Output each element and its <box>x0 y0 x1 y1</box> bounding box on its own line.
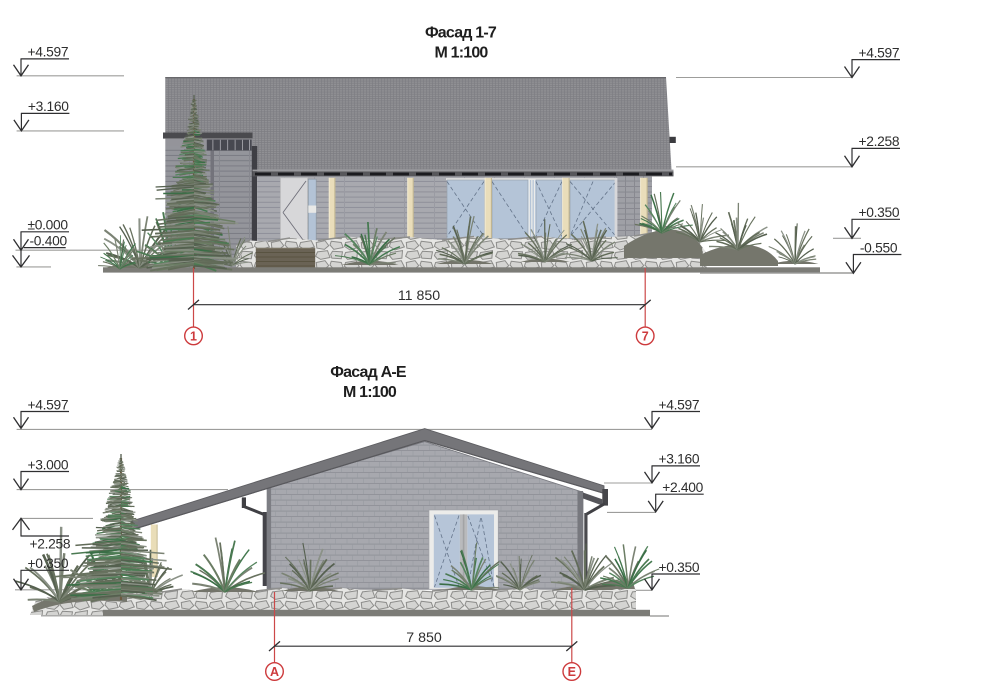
svg-text:+2.258: +2.258 <box>859 134 900 149</box>
svg-text:Е: Е <box>568 665 576 679</box>
svg-text:+3.160: +3.160 <box>28 99 69 114</box>
svg-text:1: 1 <box>190 330 197 344</box>
svg-text:+3.000: +3.000 <box>28 457 69 472</box>
svg-text:Фасад А-Е: Фасад А-Е <box>330 364 407 381</box>
svg-text:7: 7 <box>642 330 649 344</box>
svg-text:+0.350: +0.350 <box>859 205 900 220</box>
svg-text:+4.597: +4.597 <box>28 397 69 412</box>
svg-text:Фасад 1-7: Фасад 1-7 <box>425 25 497 42</box>
svg-text:±0.000: ±0.000 <box>28 218 69 233</box>
svg-text:-0.550: -0.550 <box>860 240 898 255</box>
svg-text:А: А <box>270 665 279 679</box>
svg-text:+2.258: +2.258 <box>30 537 71 552</box>
svg-text:11 850: 11 850 <box>398 288 440 304</box>
svg-text:+4.597: +4.597 <box>859 45 900 60</box>
svg-text:+2.400: +2.400 <box>662 480 703 495</box>
svg-text:7 850: 7 850 <box>406 630 442 646</box>
svg-text:+0.350: +0.350 <box>28 556 69 571</box>
svg-text:+4.597: +4.597 <box>28 45 69 60</box>
svg-text:+4.597: +4.597 <box>659 397 700 412</box>
svg-text:+0.350: +0.350 <box>659 560 700 575</box>
svg-text:-0.400: -0.400 <box>30 233 68 248</box>
svg-text:М 1:100: М 1:100 <box>343 384 397 401</box>
svg-text:+3.160: +3.160 <box>659 452 700 467</box>
svg-text:М 1:100: М 1:100 <box>434 45 488 62</box>
